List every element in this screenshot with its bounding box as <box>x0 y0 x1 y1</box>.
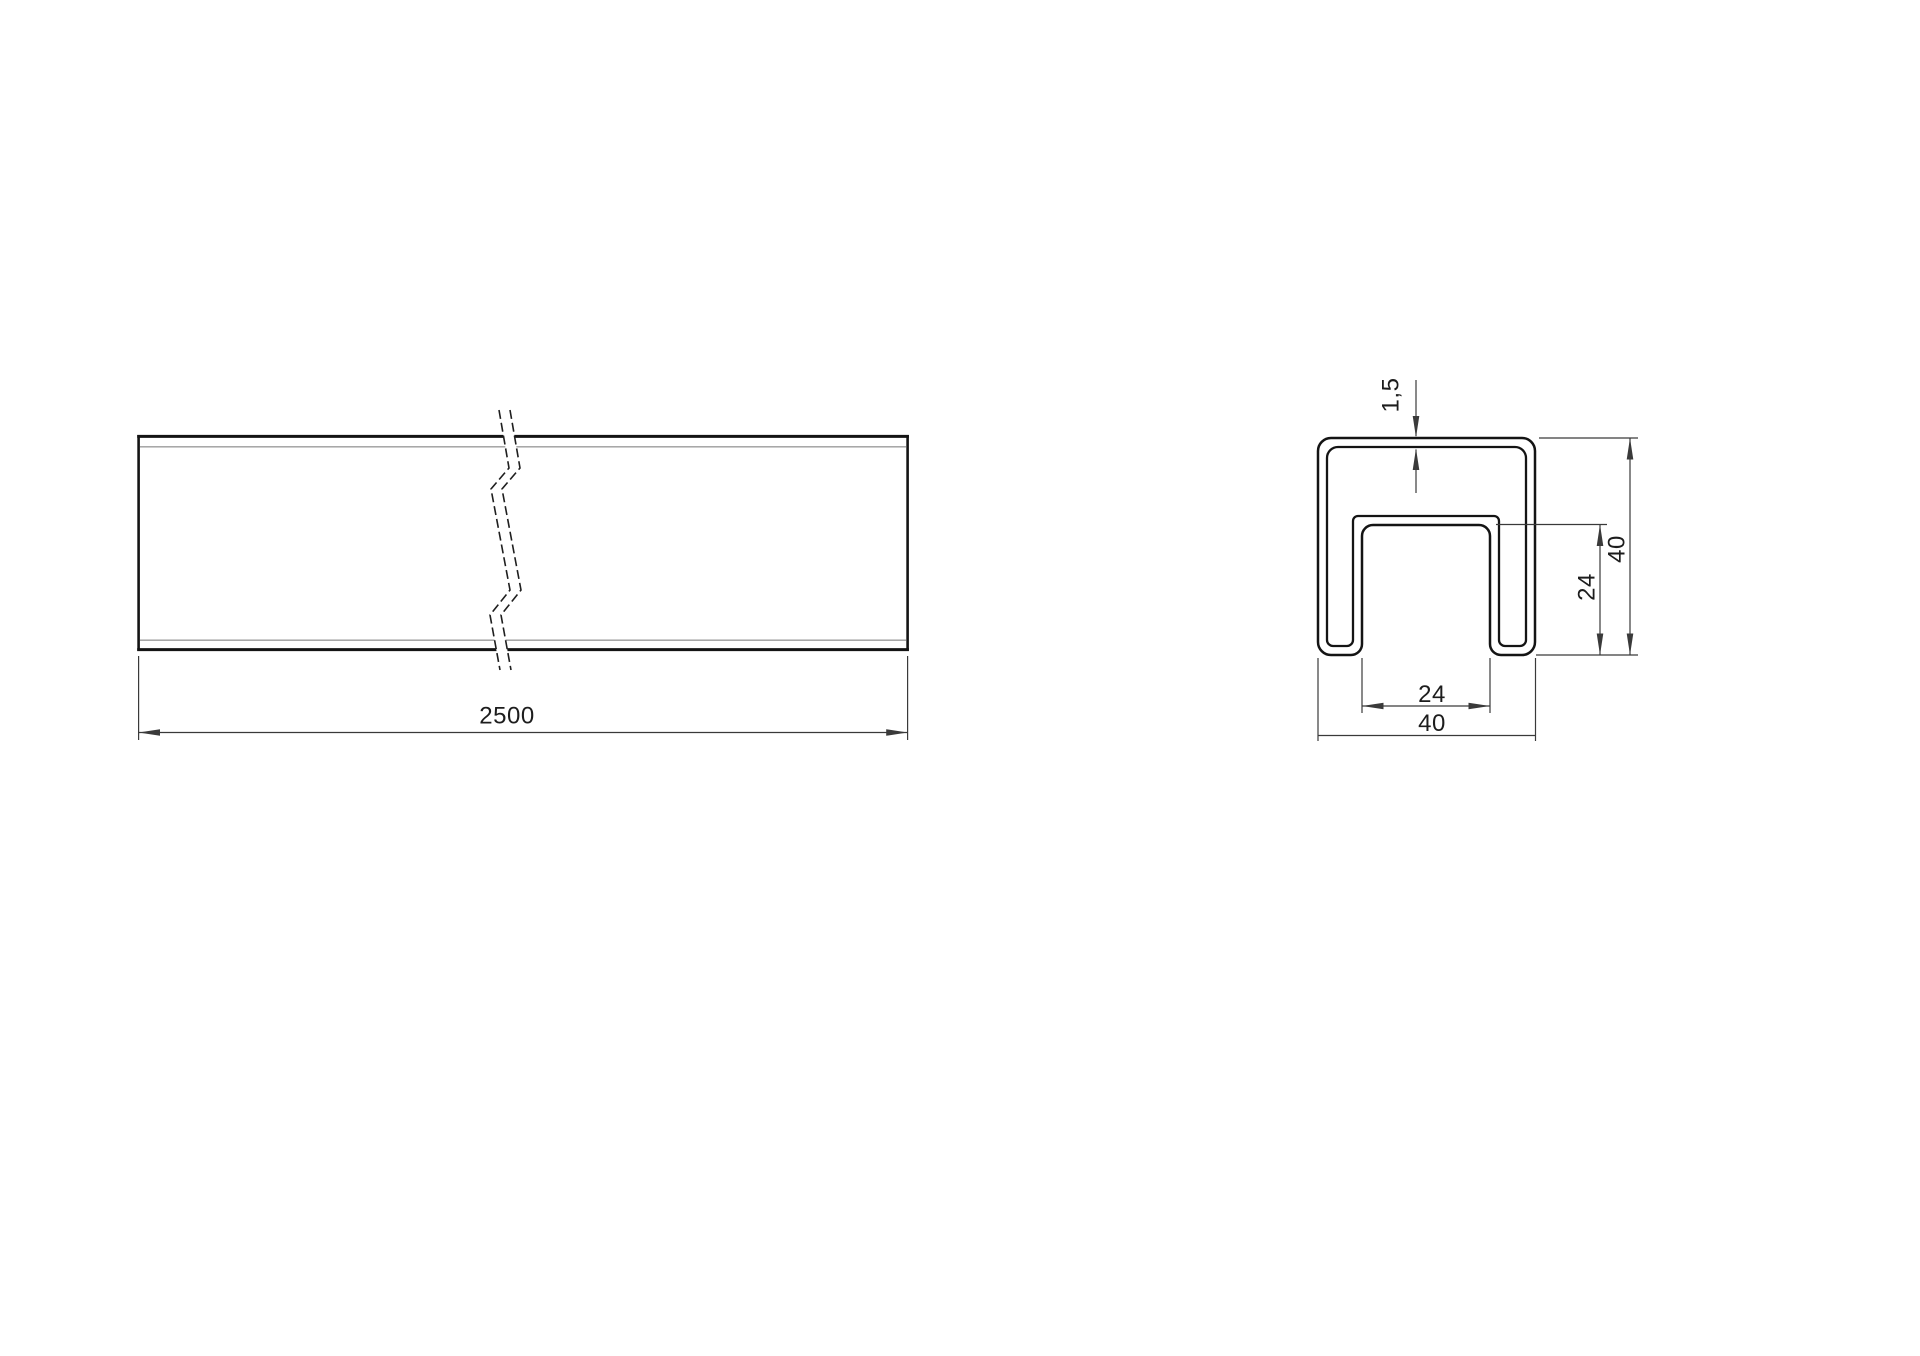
arrowhead-down <box>1627 634 1634 656</box>
side-view-edge-hints <box>140 447 906 640</box>
outer-width-label: 40 <box>1418 710 1446 737</box>
arrowhead-up <box>1627 438 1634 460</box>
arrowhead-up <box>1597 525 1604 547</box>
arrowhead-left <box>1362 703 1384 710</box>
arrowhead-up <box>1413 449 1420 471</box>
section-view: 1,5 40 24 <box>1318 378 1638 741</box>
length-dimension-label: 2500 <box>479 703 534 730</box>
arrowhead-left <box>139 729 160 736</box>
arrowhead-right <box>886 729 907 736</box>
side-view: 2500 <box>137 410 909 740</box>
technical-drawing: 2500 1,5 40 <box>0 0 1920 1356</box>
arrowhead-down <box>1413 416 1420 438</box>
section-inner-contour <box>1327 447 1526 646</box>
arrowhead-down <box>1597 634 1604 656</box>
drawing-canvas: 2500 1,5 40 <box>0 0 1920 1356</box>
dimension-wall-thickness <box>1413 380 1420 493</box>
arrowhead-right <box>1469 703 1491 710</box>
slot-width-label: 24 <box>1418 681 1446 708</box>
slot-depth-label: 24 <box>1574 573 1601 601</box>
wall-thickness-label: 1,5 <box>1378 378 1405 413</box>
outer-height-label: 40 <box>1604 535 1631 563</box>
side-view-outline <box>137 435 909 651</box>
section-outer-contour <box>1318 438 1535 655</box>
